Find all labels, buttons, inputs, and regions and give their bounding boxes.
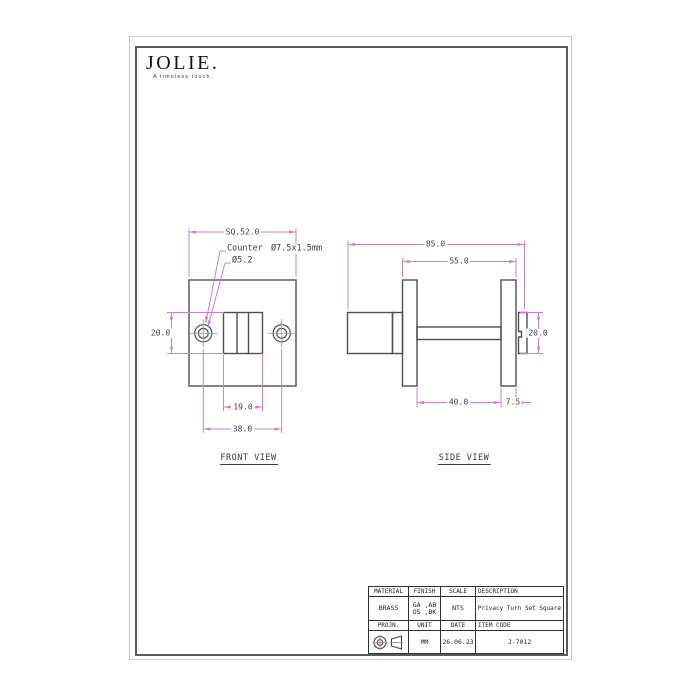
- front-turn-knob: [224, 313, 263, 354]
- knob-collar: [393, 313, 403, 354]
- dim-square-52: SQ.52.0: [224, 227, 262, 236]
- finish-value: GA ,AB OS ,BK: [409, 597, 441, 621]
- dim-plate-thickness-7-5: 7.5: [504, 398, 522, 407]
- header-description: DESCRIPTION: [476, 587, 563, 597]
- drawing-sheet: JOLIE. A timeless touch.: [0, 0, 700, 700]
- header-projn: PROJN.: [369, 621, 409, 631]
- dim-front-height-20: 20.0: [149, 329, 172, 338]
- dim-overall-85: 85.0: [424, 240, 447, 249]
- note-hole-diameter: Ø5.2: [231, 257, 253, 266]
- header-material: MATERIAL: [369, 587, 409, 597]
- technical-drawing-canvas: [0, 0, 700, 700]
- first-angle-projection-icon: [372, 634, 405, 651]
- unit-value: MM: [409, 631, 441, 653]
- hole-centerlines: [189, 319, 295, 347]
- description-value: Privacy Turn Set Square: [476, 597, 563, 621]
- date-value: 26.06.23: [441, 631, 476, 653]
- projection-cell: [369, 631, 409, 653]
- side-view-dimensions: [348, 241, 543, 408]
- header-unit: UNIT: [409, 621, 441, 631]
- scale-value: NTS: [441, 597, 476, 621]
- front-view-label: FRONT VIEW: [219, 453, 277, 465]
- dim-hole-spacing-38: 38.0: [231, 424, 254, 433]
- header-finish: FINISH: [409, 587, 441, 597]
- side-view-dim-arrows: [348, 243, 540, 404]
- side-plate-left: [403, 280, 418, 386]
- dim-turn-height-20: 20.0: [526, 329, 549, 338]
- header-scale: SCALE: [441, 587, 476, 597]
- side-plate-right: [501, 280, 516, 386]
- note-counterbore: Counter Ø7.5x1.5mm: [226, 245, 323, 254]
- side-view-label: SIDE VIEW: [438, 453, 491, 465]
- header-item-code: ITEM CODE: [476, 621, 563, 631]
- spindle: [417, 327, 501, 340]
- material-value: BRASS: [369, 597, 409, 621]
- front-view-drawing: [189, 280, 296, 386]
- dim-knob-width-19: 19.0: [231, 402, 254, 411]
- dim-span-55: 55.0: [447, 257, 470, 266]
- dim-spindle-40: 40.0: [447, 398, 470, 407]
- header-date: DATE: [441, 621, 476, 631]
- side-view-drawing: [348, 280, 528, 386]
- finish-line-2: OS ,BK: [413, 609, 436, 616]
- item-code-value: J-7012: [476, 631, 563, 653]
- side-turn-knob: [348, 313, 393, 354]
- title-block: MATERIAL FINISH SCALE DESCRIPTION BRASS …: [368, 586, 564, 654]
